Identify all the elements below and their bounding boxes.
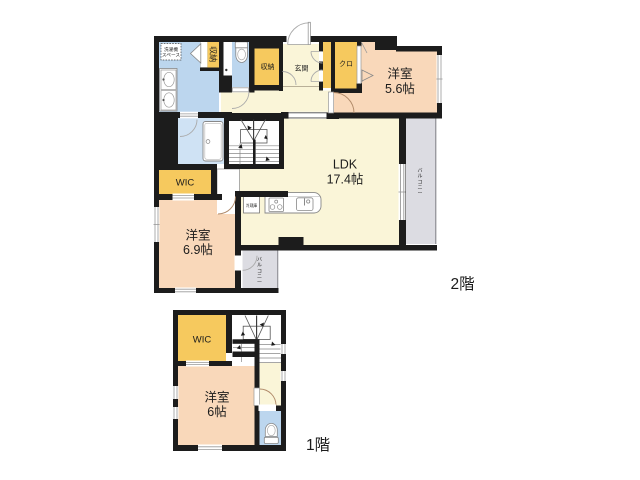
svg-text:洋室: 洋室 — [204, 390, 229, 405]
svg-text:1階: 1階 — [306, 436, 330, 454]
svg-text:LDK: LDK — [333, 158, 358, 172]
svg-text:洋室: 洋室 — [185, 228, 210, 243]
svg-text:5.6帖: 5.6帖 — [385, 81, 415, 96]
svg-text:玄関: 玄関 — [295, 64, 309, 73]
svg-text:WIC: WIC — [193, 335, 212, 346]
svg-text:17.4帖: 17.4帖 — [327, 172, 364, 187]
svg-text:収納: 収納 — [261, 62, 275, 71]
svg-text:6帖: 6帖 — [207, 404, 226, 419]
svg-text:ー: ー — [417, 191, 422, 197]
svg-text:クロ: クロ — [339, 60, 353, 68]
svg-text:冷蔵庫: 冷蔵庫 — [246, 203, 258, 208]
svg-text:収納: 収納 — [209, 46, 219, 62]
svg-text:ー: ー — [257, 280, 262, 286]
svg-text:スペース: スペース — [162, 53, 180, 58]
svg-text:洋室: 洋室 — [387, 66, 412, 81]
svg-text:6.9帖: 6.9帖 — [183, 242, 213, 257]
svg-text:2階: 2階 — [451, 275, 475, 293]
svg-text:WIC: WIC — [176, 178, 195, 189]
